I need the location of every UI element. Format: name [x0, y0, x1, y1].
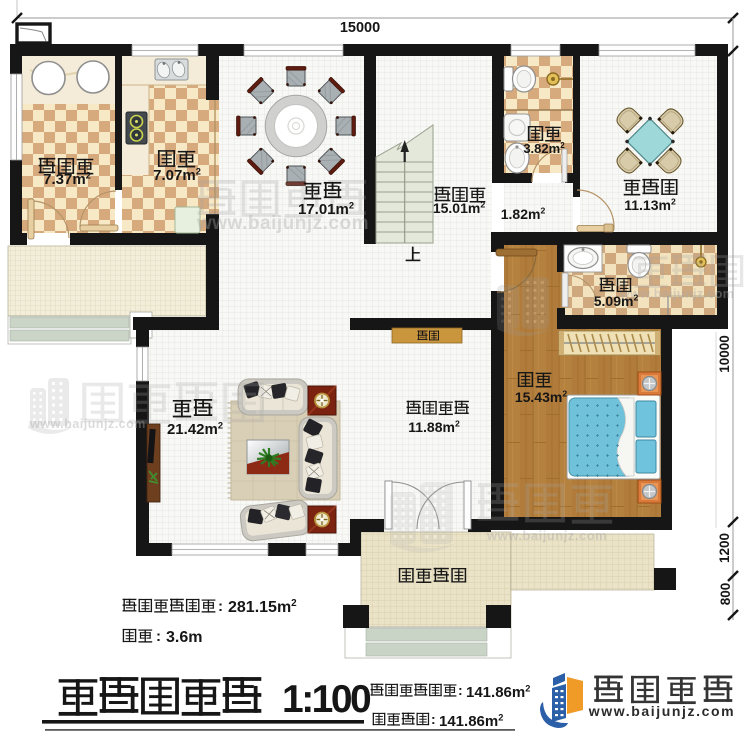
svg-text::: : [218, 598, 223, 615]
svg-text:10000: 10000 [717, 335, 732, 373]
svg-text:15000: 15000 [340, 20, 380, 36]
svg-text:141.86m2: 141.86m2 [466, 683, 530, 701]
svg-text:www.baijunjz.com: www.baijunjz.com [588, 703, 735, 719]
svg-text:1.82m2: 1.82m2 [501, 206, 546, 222]
svg-text::: : [156, 628, 161, 645]
svg-text:1200: 1200 [717, 533, 732, 563]
svg-text:15.43m2: 15.43m2 [515, 389, 567, 405]
svg-text:7.37m2: 7.37m2 [43, 170, 91, 188]
svg-text::: : [458, 682, 463, 698]
svg-text:5.09m2: 5.09m2 [594, 293, 639, 309]
svg-text:3.82m2: 3.82m2 [523, 141, 565, 156]
svg-text:www.baijunjz.com: www.baijunjz.com [486, 528, 607, 543]
svg-text:www.baijunjz.com: www.baijunjz.com [29, 417, 146, 431]
svg-text:281.15m2: 281.15m2 [228, 598, 297, 616]
svg-text:7.07m2: 7.07m2 [153, 166, 201, 184]
svg-text:800: 800 [718, 583, 733, 606]
svg-text:11.13m2: 11.13m2 [624, 197, 676, 213]
svg-text:1:100: 1:100 [282, 678, 371, 721]
svg-text:141.86m2: 141.86m2 [439, 712, 503, 730]
svg-text:3.6m: 3.6m [166, 629, 202, 646]
svg-text:15.01m2: 15.01m2 [433, 200, 485, 216]
svg-text:17.01m2: 17.01m2 [298, 200, 354, 218]
svg-text::: : [431, 711, 436, 727]
svg-text:21.42m2: 21.42m2 [167, 420, 223, 438]
svg-text:11.88m2: 11.88m2 [408, 419, 460, 435]
